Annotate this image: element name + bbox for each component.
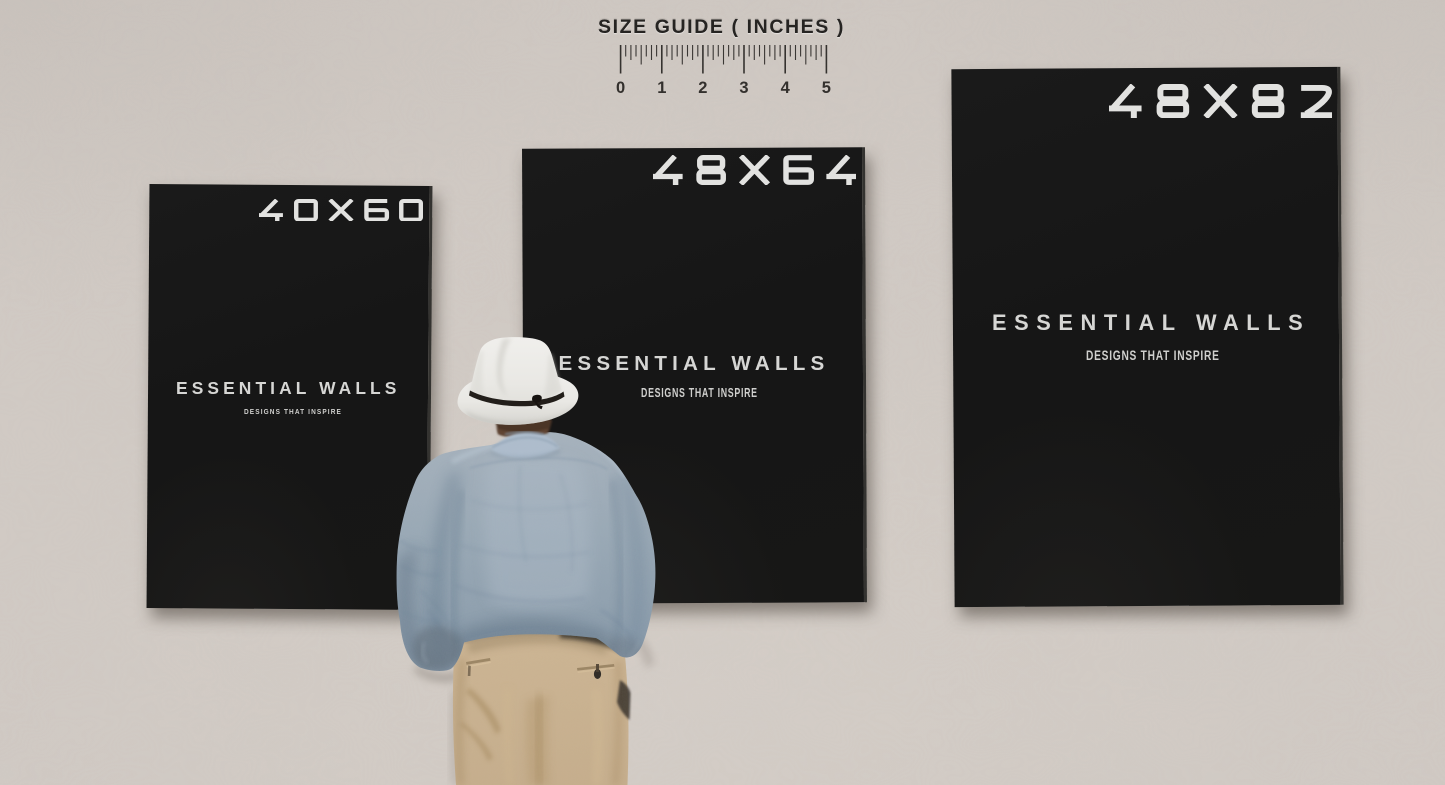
svg-text:1: 1 (657, 79, 666, 97)
svg-text:0: 0 (616, 79, 625, 97)
svg-text:5: 5 (822, 79, 831, 97)
svg-text:3: 3 (739, 79, 748, 97)
svg-text:4: 4 (781, 79, 791, 97)
svg-text:2: 2 (698, 79, 707, 97)
